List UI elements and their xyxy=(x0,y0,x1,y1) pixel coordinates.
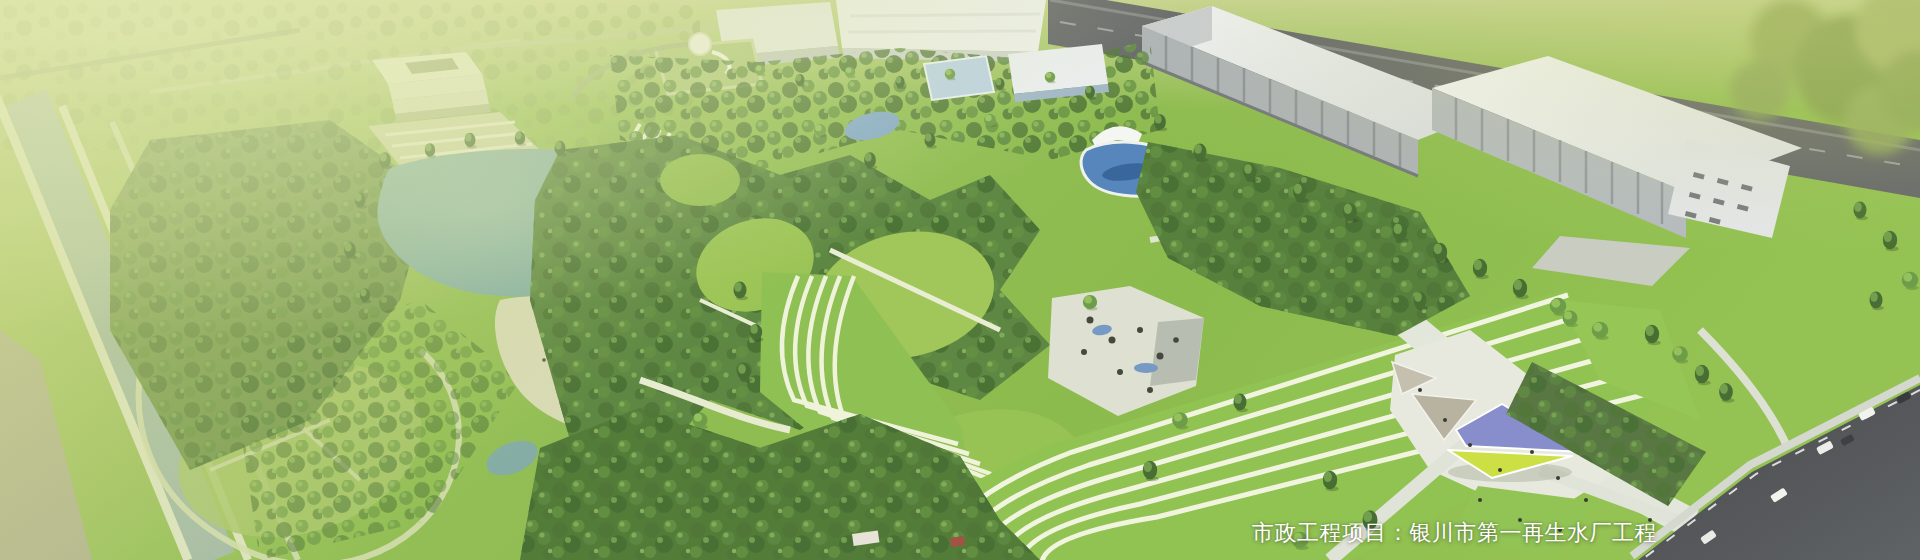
banner-hero: 市政工程项目：银川市第一再生水厂工程 xyxy=(0,0,1920,560)
soft-veil xyxy=(0,0,1920,560)
project-caption: 市政工程项目：银川市第一再生水厂工程 xyxy=(1252,521,1657,545)
aerial-render xyxy=(0,0,1920,560)
